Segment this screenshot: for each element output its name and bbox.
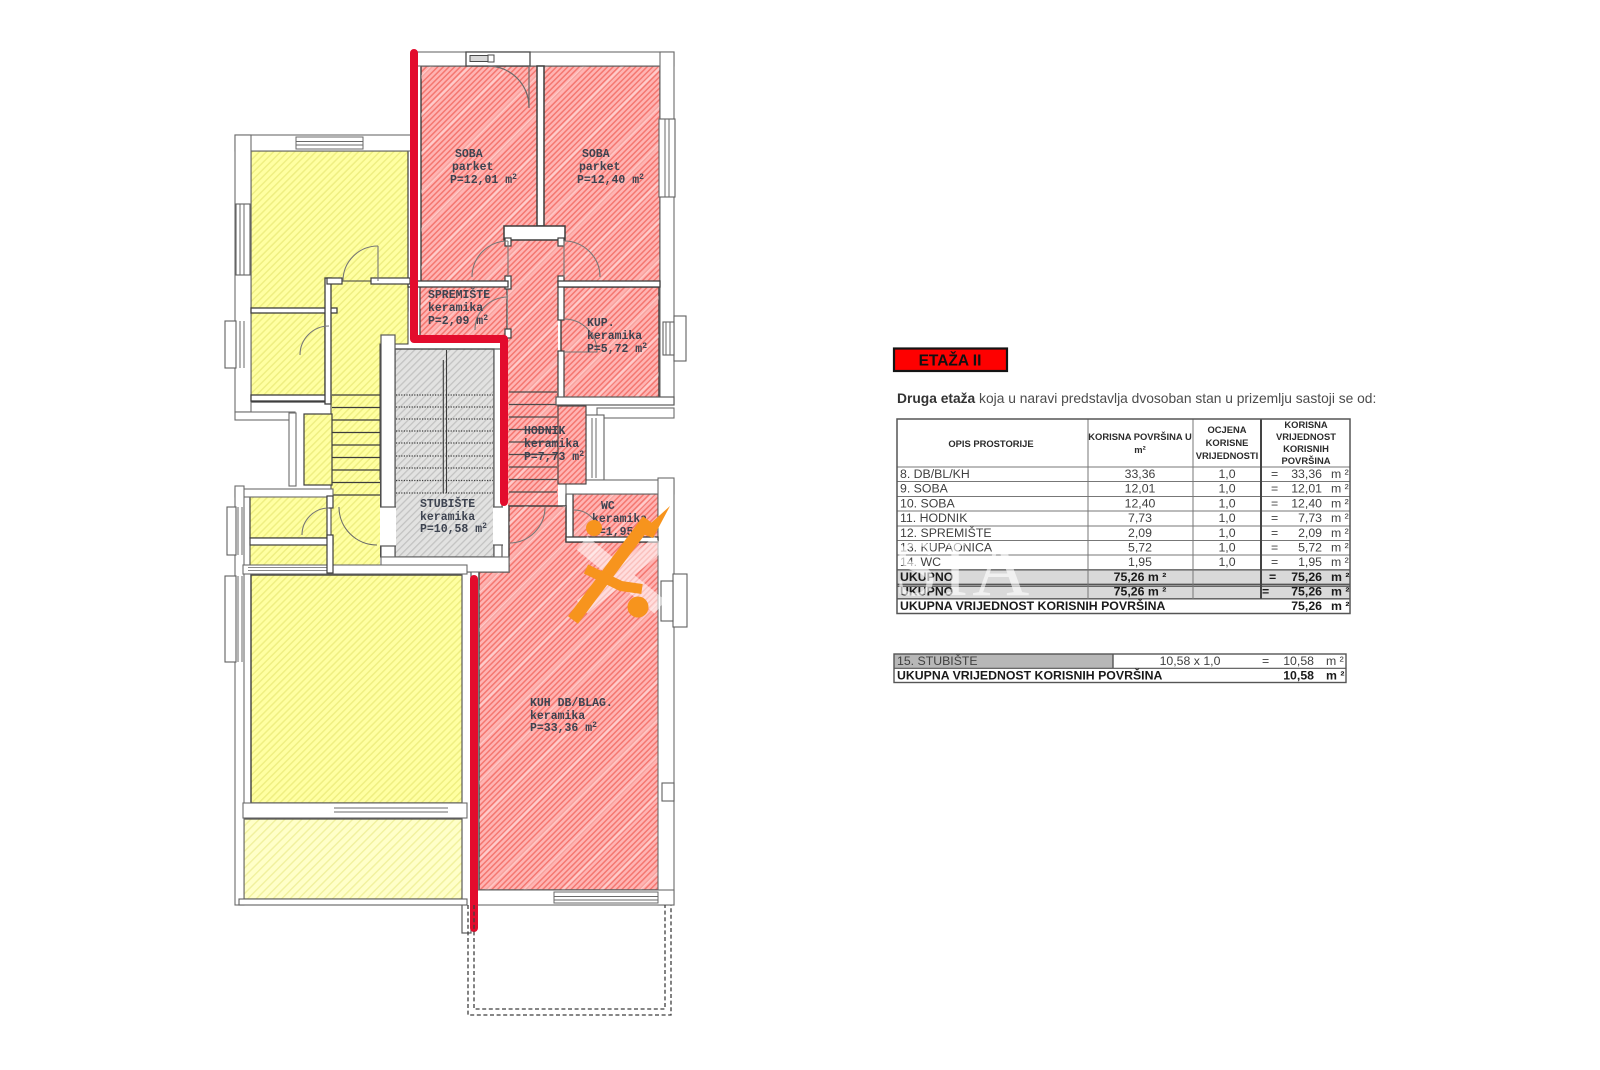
svg-text:75,26: 75,26	[1291, 599, 1322, 613]
svg-text:m ²: m ²	[1331, 584, 1349, 598]
svg-text:1,95: 1,95	[1298, 555, 1322, 569]
svg-text:7,73: 7,73	[1128, 511, 1152, 525]
svg-text:75,26 m ²: 75,26 m ²	[1114, 584, 1167, 598]
svg-text:m ²: m ²	[1331, 467, 1349, 481]
svg-text:12,01: 12,01	[1125, 482, 1156, 496]
svg-text:OPIS PROSTORIJE: OPIS PROSTORIJE	[948, 438, 1033, 449]
svg-text:1,95: 1,95	[1128, 555, 1152, 569]
svg-text:75,26: 75,26	[1291, 584, 1322, 598]
svg-text:parket: parket	[452, 161, 493, 174]
svg-text:10,58: 10,58	[1283, 654, 1314, 668]
svg-text:P=2,09 m2: P=2,09 m2	[428, 314, 488, 328]
svg-text:10,58: 10,58	[1283, 669, 1314, 683]
svg-text:P=12,01 m2: P=12,01 m2	[450, 173, 517, 187]
svg-text:m ²: m ²	[1331, 511, 1349, 525]
svg-text:5,72: 5,72	[1128, 541, 1152, 555]
svg-text:P=7,73 m2: P=7,73 m2	[524, 450, 584, 464]
svg-text:m ²: m ²	[1331, 482, 1349, 496]
svg-text:SOBA: SOBA	[582, 148, 610, 161]
svg-text:SOBA: SOBA	[455, 148, 483, 161]
svg-text:KORISNA POVRŠINA U: KORISNA POVRŠINA U	[1088, 431, 1192, 442]
svg-text:parket: parket	[579, 161, 620, 174]
svg-text:P=12,40 m2: P=12,40 m2	[577, 173, 644, 187]
svg-text:POVRŠINA: POVRŠINA	[1282, 455, 1331, 466]
svg-text:7,73: 7,73	[1298, 511, 1322, 525]
svg-text:UKUPNA VRIJEDNOST KORISNIH POV: UKUPNA VRIJEDNOST KORISNIH POVRŠINA	[897, 668, 1162, 683]
svg-text:=: =	[1262, 584, 1269, 598]
svg-text:33,36: 33,36	[1291, 467, 1322, 481]
svg-text:=: =	[1271, 555, 1278, 569]
svg-text:9. SOBA: 9. SOBA	[900, 482, 949, 496]
svg-text:5,72: 5,72	[1298, 541, 1322, 555]
svg-text:P=5,72 m2: P=5,72 m2	[587, 342, 647, 356]
svg-text:1,0: 1,0	[1218, 467, 1235, 481]
svg-text:OCJENA: OCJENA	[1207, 424, 1246, 435]
svg-text:33,36: 33,36	[1125, 467, 1156, 481]
svg-text:m ²: m ²	[1331, 599, 1349, 613]
svg-text:12,40: 12,40	[1125, 496, 1156, 510]
svg-text:m ²: m ²	[1326, 654, 1344, 668]
svg-text:=: =	[1271, 482, 1278, 496]
svg-text:KORISNIH: KORISNIH	[1283, 443, 1329, 454]
svg-text:11. HODNIK: 11. HODNIK	[900, 511, 968, 525]
svg-text:=: =	[1271, 511, 1278, 525]
svg-text:10,58 x 1,0: 10,58 x 1,0	[1160, 654, 1221, 668]
svg-text:P=10,58 m2: P=10,58 m2	[420, 522, 487, 536]
svg-text:=: =	[1271, 541, 1278, 555]
svg-text:KORISNA: KORISNA	[1284, 419, 1327, 430]
svg-text:10. SOBA: 10. SOBA	[900, 496, 955, 510]
svg-text:=: =	[1271, 496, 1278, 510]
svg-text:KORISNE: KORISNE	[1206, 437, 1249, 448]
svg-text:keramika: keramika	[587, 330, 642, 343]
svg-text:75,26 m ²: 75,26 m ²	[1114, 570, 1167, 584]
svg-text:SPREMIŠTE: SPREMIŠTE	[428, 288, 490, 302]
svg-text:keramika: keramika	[428, 302, 483, 315]
svg-text:1,0: 1,0	[1218, 555, 1235, 569]
svg-text:VRIJEDNOST: VRIJEDNOST	[1276, 431, 1336, 442]
svg-text:2,09: 2,09	[1298, 526, 1322, 540]
svg-text:KUH DB/BLAG.: KUH DB/BLAG.	[530, 697, 613, 710]
svg-text:m ²: m ²	[1331, 555, 1349, 569]
svg-text:=: =	[1271, 526, 1278, 540]
svg-text:=: =	[1269, 570, 1276, 584]
svg-text:m ²: m ²	[1326, 669, 1344, 683]
svg-text:8. DB/BL/KH: 8. DB/BL/KH	[900, 467, 970, 481]
svg-text:SIA: SIA	[894, 526, 1033, 613]
svg-text:WC: WC	[601, 500, 615, 513]
svg-text:HODNIK: HODNIK	[524, 425, 566, 438]
svg-text:keramika: keramika	[524, 438, 579, 451]
svg-text:m ²: m ²	[1331, 496, 1349, 510]
svg-text:P=33,36 m2: P=33,36 m2	[530, 721, 597, 735]
svg-text:KUP.: KUP.	[587, 317, 615, 330]
svg-text:m ²: m ²	[1331, 526, 1349, 540]
svg-text:m²: m²	[1134, 444, 1145, 455]
svg-text:m ²: m ²	[1331, 541, 1349, 555]
svg-text:1,0: 1,0	[1218, 526, 1235, 540]
svg-text:Druga etaža koja u naravi pred: Druga etaža koja u naravi predstavlja dv…	[897, 391, 1376, 406]
svg-text:1,0: 1,0	[1218, 482, 1235, 496]
svg-text:75,26: 75,26	[1291, 570, 1322, 584]
svg-text:m ²: m ²	[1331, 570, 1349, 584]
svg-text:15. STUBIŠTE: 15. STUBIŠTE	[897, 653, 978, 668]
svg-text:12,40: 12,40	[1291, 496, 1322, 510]
svg-text:1,0: 1,0	[1218, 496, 1235, 510]
svg-text:VRIJEDNOSTI: VRIJEDNOSTI	[1196, 450, 1259, 461]
svg-text:12,01: 12,01	[1291, 482, 1322, 496]
svg-text:ETAŽA II: ETAŽA II	[919, 352, 982, 370]
svg-text:=: =	[1271, 467, 1278, 481]
svg-text:=: =	[1262, 654, 1269, 668]
svg-text:STUBIŠTE: STUBIŠTE	[420, 497, 475, 511]
svg-text:2,09: 2,09	[1128, 526, 1152, 540]
svg-text:1,0: 1,0	[1218, 541, 1235, 555]
svg-text:1,0: 1,0	[1218, 511, 1235, 525]
